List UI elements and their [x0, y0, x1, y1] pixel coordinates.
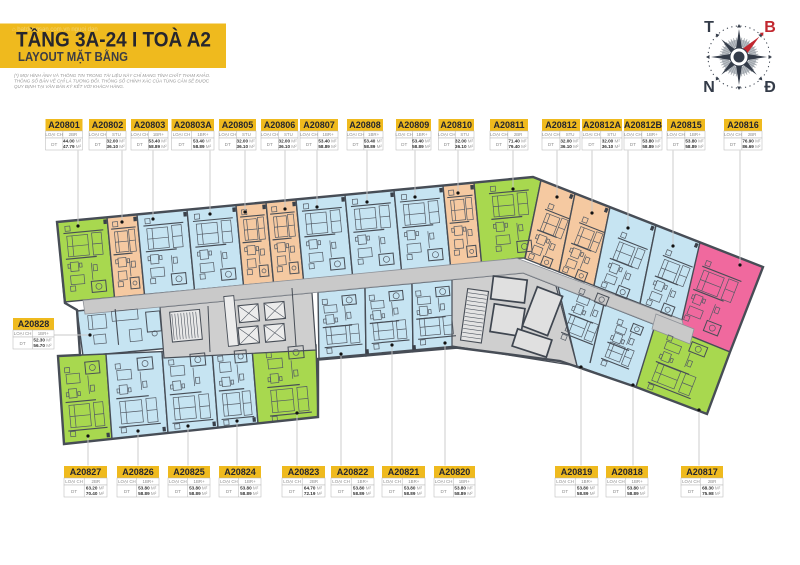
svg-text:DT: DT — [401, 142, 407, 147]
svg-text:A20818: A20818 — [611, 467, 643, 477]
svg-text:DT: DT — [730, 142, 736, 147]
svg-text:86.69 M²: 86.69 M² — [742, 144, 761, 149]
svg-text:58.89 M²: 58.89 M² — [454, 491, 473, 496]
svg-text:LOẠI CH: LOẠI CH — [219, 132, 237, 137]
svg-text:32.00 M²: 32.00 M² — [279, 139, 298, 144]
svg-text:A20826: A20826 — [122, 467, 154, 477]
svg-text:DT: DT — [548, 142, 554, 147]
svg-text:DT: DT — [630, 142, 636, 147]
svg-text:1BR+: 1BR+ — [153, 132, 165, 137]
svg-text:1BR+: 1BR+ — [38, 331, 50, 336]
svg-text:2BR: 2BR — [92, 479, 101, 484]
svg-text:1BR+: 1BR+ — [632, 479, 644, 484]
svg-text:76.90 M²: 76.90 M² — [742, 139, 761, 144]
svg-text:DT: DT — [51, 142, 57, 147]
svg-text:1BR+: 1BR+ — [323, 132, 335, 137]
svg-text:QUY ĐỊNH TẠI VĂN BẢN KÝ KẾT VỚ: QUY ĐỊNH TẠI VĂN BẢN KÝ KẾT VỚI KHÁCH HÀ… — [14, 82, 124, 89]
svg-text:58.89 M²: 58.89 M² — [149, 144, 168, 149]
svg-text:53.80 M²: 53.80 M² — [240, 486, 259, 491]
svg-text:53.80 M²: 53.80 M² — [642, 139, 661, 144]
svg-text:LOẠI CH: LOẠI CH — [65, 479, 83, 484]
svg-text:DT: DT — [178, 142, 184, 147]
svg-text:LOẠI CH: LOẠI CH — [395, 132, 413, 137]
svg-text:STU: STU — [460, 132, 469, 137]
svg-text:LOẠI CH: LOẠI CH — [435, 479, 453, 484]
svg-text:LOẠI CH: LOẠI CH — [624, 132, 642, 137]
svg-text:58.89 M²: 58.89 M² — [627, 491, 646, 496]
svg-text:DT: DT — [71, 489, 77, 494]
svg-text:2BR: 2BR — [310, 479, 319, 484]
svg-text:T: T — [704, 19, 714, 36]
svg-text:A20822: A20822 — [337, 467, 369, 477]
svg-text:64.70 M²: 64.70 M² — [304, 486, 323, 491]
svg-text:A20812: A20812 — [545, 120, 577, 130]
svg-text:1BR+: 1BR+ — [245, 479, 257, 484]
svg-text:LOẠI CH: LOẠI CH — [667, 132, 685, 137]
svg-text:36.10 M²: 36.10 M² — [279, 144, 298, 149]
svg-text:32.00 M²: 32.00 M² — [602, 139, 621, 144]
svg-text:LOẠI CH: LOẠI CH — [45, 132, 63, 137]
svg-text:LOẠI CH: LOẠI CH — [682, 479, 700, 484]
svg-text:A20805: A20805 — [222, 120, 254, 130]
svg-text:1BR+: 1BR+ — [368, 132, 380, 137]
svg-text:1BR+: 1BR+ — [143, 479, 155, 484]
svg-text:STU: STU — [607, 132, 616, 137]
svg-text:58.89 M²: 58.89 M² — [240, 491, 259, 496]
svg-text:1BR+: 1BR+ — [459, 479, 471, 484]
svg-text:STU: STU — [284, 132, 293, 137]
svg-text:32.00 M²: 32.00 M² — [455, 139, 474, 144]
svg-text:58.89 M²: 58.89 M² — [412, 144, 431, 149]
svg-text:58.89 M²: 58.89 M² — [193, 144, 212, 149]
svg-text:DT: DT — [588, 142, 594, 147]
svg-text:LOẠI CH: LOẠI CH — [169, 479, 187, 484]
svg-text:72.19 M²: 72.19 M² — [304, 491, 323, 496]
svg-text:LOẠI CH: LOẠI CH — [490, 132, 508, 137]
svg-text:53.80 M²: 53.80 M² — [404, 486, 423, 491]
svg-text:2BR: 2BR — [748, 132, 757, 137]
svg-text:1BR+: 1BR+ — [408, 479, 420, 484]
svg-text:71.40 M²: 71.40 M² — [508, 139, 527, 144]
svg-text:A20808: A20808 — [349, 120, 381, 130]
svg-text:DT: DT — [441, 489, 447, 494]
svg-text:1BR+: 1BR+ — [690, 132, 702, 137]
svg-text:A20811: A20811 — [493, 120, 524, 130]
svg-text:A20816: A20816 — [727, 120, 759, 130]
svg-text:DT: DT — [444, 142, 450, 147]
svg-text:56.70 M²: 56.70 M² — [33, 343, 52, 348]
svg-text:LOẠI CH: LOẠI CH — [383, 479, 401, 484]
svg-text:LOẠI CH: LOẠI CH — [583, 132, 601, 137]
svg-text:THÔNG SỐ BẢN VẼ CHỈ LÀ TƯƠNG Đ: THÔNG SỐ BẢN VẼ CHỈ LÀ TƯƠNG ĐỐI. THÔNG … — [14, 78, 210, 84]
svg-text:LOẠI CH: LOẠI CH — [261, 132, 279, 137]
svg-text:A20815: A20815 — [670, 120, 702, 130]
svg-text:A20820: A20820 — [439, 467, 471, 477]
svg-text:36.10 M²: 36.10 M² — [107, 144, 126, 149]
svg-text:LOẠI CH: LOẠI CH — [89, 132, 107, 137]
svg-text:2BR: 2BR — [514, 132, 523, 137]
svg-text:A20803A: A20803A — [174, 120, 213, 130]
svg-text:A20823: A20823 — [288, 467, 320, 477]
svg-text:A20827: A20827 — [70, 467, 102, 477]
svg-text:Đ: Đ — [764, 79, 776, 96]
svg-text:A20809: A20809 — [398, 120, 430, 130]
svg-text:36.10 M²: 36.10 M² — [237, 144, 256, 149]
svg-text:STU: STU — [242, 132, 251, 137]
svg-text:47.79 M²: 47.79 M² — [63, 144, 82, 149]
svg-text:A20810: A20810 — [440, 120, 472, 130]
svg-text:A20803: A20803 — [134, 120, 166, 130]
svg-text:52.30 M²: 52.30 M² — [33, 338, 52, 343]
svg-text:DT: DT — [175, 489, 181, 494]
svg-text:53.80 M²: 53.80 M² — [138, 486, 157, 491]
svg-text:75.98 M²: 75.98 M² — [702, 491, 721, 496]
svg-text:A20821: A20821 — [388, 467, 420, 477]
svg-text:53.40 M²: 53.40 M² — [193, 139, 212, 144]
svg-text:A20817: A20817 — [686, 467, 718, 477]
svg-text:DT: DT — [338, 489, 344, 494]
svg-text:53.80 M²: 53.80 M² — [685, 139, 704, 144]
svg-text:1BR+: 1BR+ — [647, 132, 659, 137]
svg-text:53.80 M²: 53.80 M² — [454, 486, 473, 491]
svg-text:LAYOUT MẶT BẰNG: LAYOUT MẶT BẰNG — [18, 49, 128, 64]
svg-text:A20802: A20802 — [92, 120, 124, 130]
svg-text:58.89 M²: 58.89 M² — [353, 491, 372, 496]
svg-text:53.40 M²: 53.40 M² — [149, 139, 168, 144]
svg-text:36.10 M²: 36.10 M² — [602, 144, 621, 149]
svg-text:1BR+: 1BR+ — [357, 479, 369, 484]
svg-text:68.30 M²: 68.30 M² — [702, 486, 721, 491]
svg-text:32.00 M²: 32.00 M² — [237, 139, 256, 144]
svg-text:79.40 M²: 79.40 M² — [508, 144, 527, 149]
svg-text:53.80 M²: 53.80 M² — [353, 486, 372, 491]
svg-text:A20825: A20825 — [173, 467, 205, 477]
svg-text:53.40 M²: 53.40 M² — [318, 139, 337, 144]
svg-text:B: B — [764, 19, 776, 36]
svg-text:LOẠI CH: LOẠI CH — [220, 479, 238, 484]
svg-text:1BR+: 1BR+ — [581, 479, 593, 484]
svg-text:LOẠI CH: LOẠI CH — [131, 132, 149, 137]
svg-text:58.89 M²: 58.89 M² — [404, 491, 423, 496]
svg-text:DT: DT — [562, 489, 568, 494]
svg-text:58.89 M²: 58.89 M² — [364, 144, 383, 149]
svg-text:32.00 M²: 32.00 M² — [107, 139, 126, 144]
svg-text:DT: DT — [673, 142, 679, 147]
svg-text:LOẠI CH: LOẠI CH — [283, 479, 301, 484]
svg-text:70.40 M²: 70.40 M² — [86, 491, 105, 496]
svg-text:DT: DT — [352, 142, 358, 147]
svg-text:36.10 M²: 36.10 M² — [455, 144, 474, 149]
svg-text:LOẠI CH: LOẠI CH — [173, 132, 191, 137]
svg-text:58.89 M²: 58.89 M² — [189, 491, 208, 496]
svg-text:A20807: A20807 — [303, 120, 335, 130]
svg-text:2BR: 2BR — [708, 479, 717, 484]
svg-text:N: N — [703, 79, 715, 96]
svg-text:53.80 M²: 53.80 M² — [189, 486, 208, 491]
svg-text:DT: DT — [124, 489, 130, 494]
svg-text:A20824: A20824 — [224, 467, 256, 477]
svg-text:DT: DT — [225, 142, 231, 147]
svg-text:2BR: 2BR — [69, 132, 78, 137]
svg-text:36.10 M²: 36.10 M² — [560, 144, 579, 149]
svg-text:DT: DT — [137, 142, 143, 147]
svg-text:53.80 M²: 53.80 M² — [577, 486, 596, 491]
svg-text:LOẠI CH: LOẠI CH — [438, 132, 456, 137]
svg-text:DT: DT — [20, 341, 26, 346]
svg-text:58.89 M²: 58.89 M² — [318, 144, 337, 149]
svg-text:DT: DT — [226, 489, 232, 494]
svg-text:DT: DT — [613, 489, 619, 494]
svg-text:LOẠI CH: LOẠI CH — [347, 132, 365, 137]
svg-text:DT: DT — [688, 489, 694, 494]
svg-text:DT: DT — [289, 489, 295, 494]
svg-text:LOẠI CH: LOẠI CH — [300, 132, 318, 137]
svg-text:DT: DT — [496, 142, 502, 147]
svg-text:LOẠI CH: LOẠI CH — [332, 479, 350, 484]
svg-text:32.00 M²: 32.00 M² — [560, 139, 579, 144]
svg-text:STU: STU — [112, 132, 121, 137]
svg-text:DT: DT — [389, 489, 395, 494]
svg-text:LOẠI CH: LOẠI CH — [724, 132, 742, 137]
svg-text:53.80 M²: 53.80 M² — [627, 486, 646, 491]
svg-text:LOẠI CH: LOẠI CH — [14, 331, 32, 336]
svg-text:A20806: A20806 — [264, 120, 296, 130]
svg-text:DT: DT — [95, 142, 101, 147]
svg-text:LOẠI CH: LOẠI CH — [118, 479, 136, 484]
svg-text:58.89 M²: 58.89 M² — [642, 144, 661, 149]
svg-text:1BR+: 1BR+ — [194, 479, 206, 484]
svg-text:LOẠI CH: LOẠI CH — [556, 479, 574, 484]
svg-text:63.20 M²: 63.20 M² — [86, 486, 105, 491]
svg-text:(*) MỌI HÌNH ẢNH VÀ THÔNG TIN: (*) MỌI HÌNH ẢNH VÀ THÔNG TIN TRONG TÀI … — [14, 71, 210, 78]
svg-text:44.00 M²: 44.00 M² — [63, 139, 82, 144]
svg-text:58.89 M²: 58.89 M² — [577, 491, 596, 496]
svg-text:LOẠI CH: LOẠI CH — [607, 479, 625, 484]
svg-text:A20819: A20819 — [561, 467, 593, 477]
svg-text:1BR+: 1BR+ — [197, 132, 209, 137]
svg-text:53.40 M²: 53.40 M² — [412, 139, 431, 144]
svg-text:STU: STU — [566, 132, 575, 137]
svg-text:A20828: A20828 — [18, 319, 50, 329]
svg-text:A20812B: A20812B — [624, 120, 663, 130]
svg-text:DT: DT — [267, 142, 273, 147]
svg-text:58.89 M²: 58.89 M² — [138, 491, 157, 496]
svg-text:1BR+: 1BR+ — [416, 132, 428, 137]
svg-text:58.89 M²: 58.89 M² — [685, 144, 704, 149]
svg-text:DT: DT — [306, 142, 312, 147]
svg-text:LOẠI CH: LOẠI CH — [542, 132, 560, 137]
svg-text:53.40 M²: 53.40 M² — [364, 139, 383, 144]
svg-text:A20812A: A20812A — [583, 120, 622, 130]
svg-text:A20801: A20801 — [48, 120, 80, 130]
